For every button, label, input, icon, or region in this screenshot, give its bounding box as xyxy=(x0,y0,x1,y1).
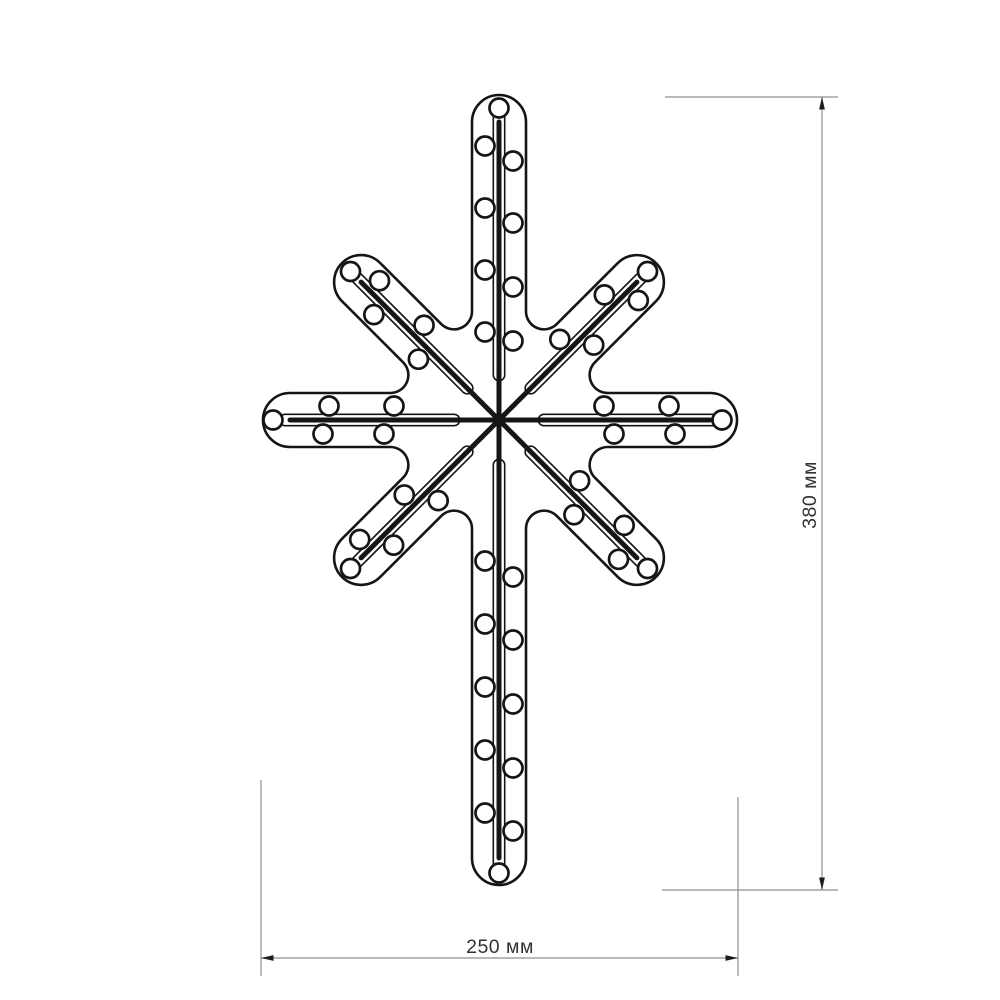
led-bulb xyxy=(615,516,634,535)
led-bulb xyxy=(476,137,495,156)
led-bulb xyxy=(504,695,523,714)
led-bulb xyxy=(504,822,523,841)
led-bulb xyxy=(395,485,414,504)
led-bulb xyxy=(666,425,685,444)
led-bulb xyxy=(609,550,628,569)
led-bulb xyxy=(660,397,679,416)
led-bulb xyxy=(364,305,383,324)
led-bulb xyxy=(314,425,333,444)
led-bulb xyxy=(476,741,495,760)
led-bulb xyxy=(550,330,569,349)
led-bulb xyxy=(320,397,339,416)
dimension-arrow-icon xyxy=(819,97,825,110)
led-bulb xyxy=(629,291,648,310)
star-motif xyxy=(263,95,737,885)
led-bulb xyxy=(504,759,523,778)
led-bulb xyxy=(476,552,495,571)
led-bulb xyxy=(476,261,495,280)
led-bulb xyxy=(570,471,589,490)
led-bulb xyxy=(476,615,495,634)
led-bulb xyxy=(504,332,523,351)
led-bulb xyxy=(429,491,448,510)
led-bulb xyxy=(476,199,495,218)
led-bulb xyxy=(638,559,657,578)
led-bulb xyxy=(350,530,369,549)
led-bulb xyxy=(713,411,732,430)
led-bulb xyxy=(595,285,614,304)
led-bulb xyxy=(504,568,523,587)
height-dimension-label: 380 мм xyxy=(799,461,821,529)
led-bulb xyxy=(504,278,523,297)
led-bulb xyxy=(564,505,583,524)
dimension-arrow-icon xyxy=(726,955,739,961)
width-dimension-label: 250 мм xyxy=(466,936,534,958)
led-bulb xyxy=(490,864,509,883)
led-bulb xyxy=(385,397,404,416)
led-bulb xyxy=(490,99,509,118)
led-bulb xyxy=(370,271,389,290)
led-bulb xyxy=(504,152,523,171)
led-bulb xyxy=(638,262,657,281)
led-bulb xyxy=(264,411,283,430)
led-bulb xyxy=(504,214,523,233)
led-strip-cores xyxy=(290,122,710,858)
led-bulb xyxy=(476,323,495,342)
technical-drawing-svg: 380 мм 250 мм xyxy=(0,0,1000,1000)
dimension-arrow-icon xyxy=(261,955,274,961)
drawing-canvas: 380 мм 250 мм xyxy=(0,0,1000,1000)
led-bulb xyxy=(341,559,360,578)
led-bulb xyxy=(375,425,394,444)
led-bulb xyxy=(504,631,523,650)
led-bulb xyxy=(476,678,495,697)
led-bulb xyxy=(384,536,403,555)
led-bulb xyxy=(584,336,603,355)
led-bulb xyxy=(415,316,434,335)
led-bulb xyxy=(476,804,495,823)
led-bulb xyxy=(605,425,624,444)
led-bulb xyxy=(341,262,360,281)
led-bulb xyxy=(595,397,614,416)
dimension-arrow-icon xyxy=(819,878,825,891)
led-bulb xyxy=(409,350,428,369)
